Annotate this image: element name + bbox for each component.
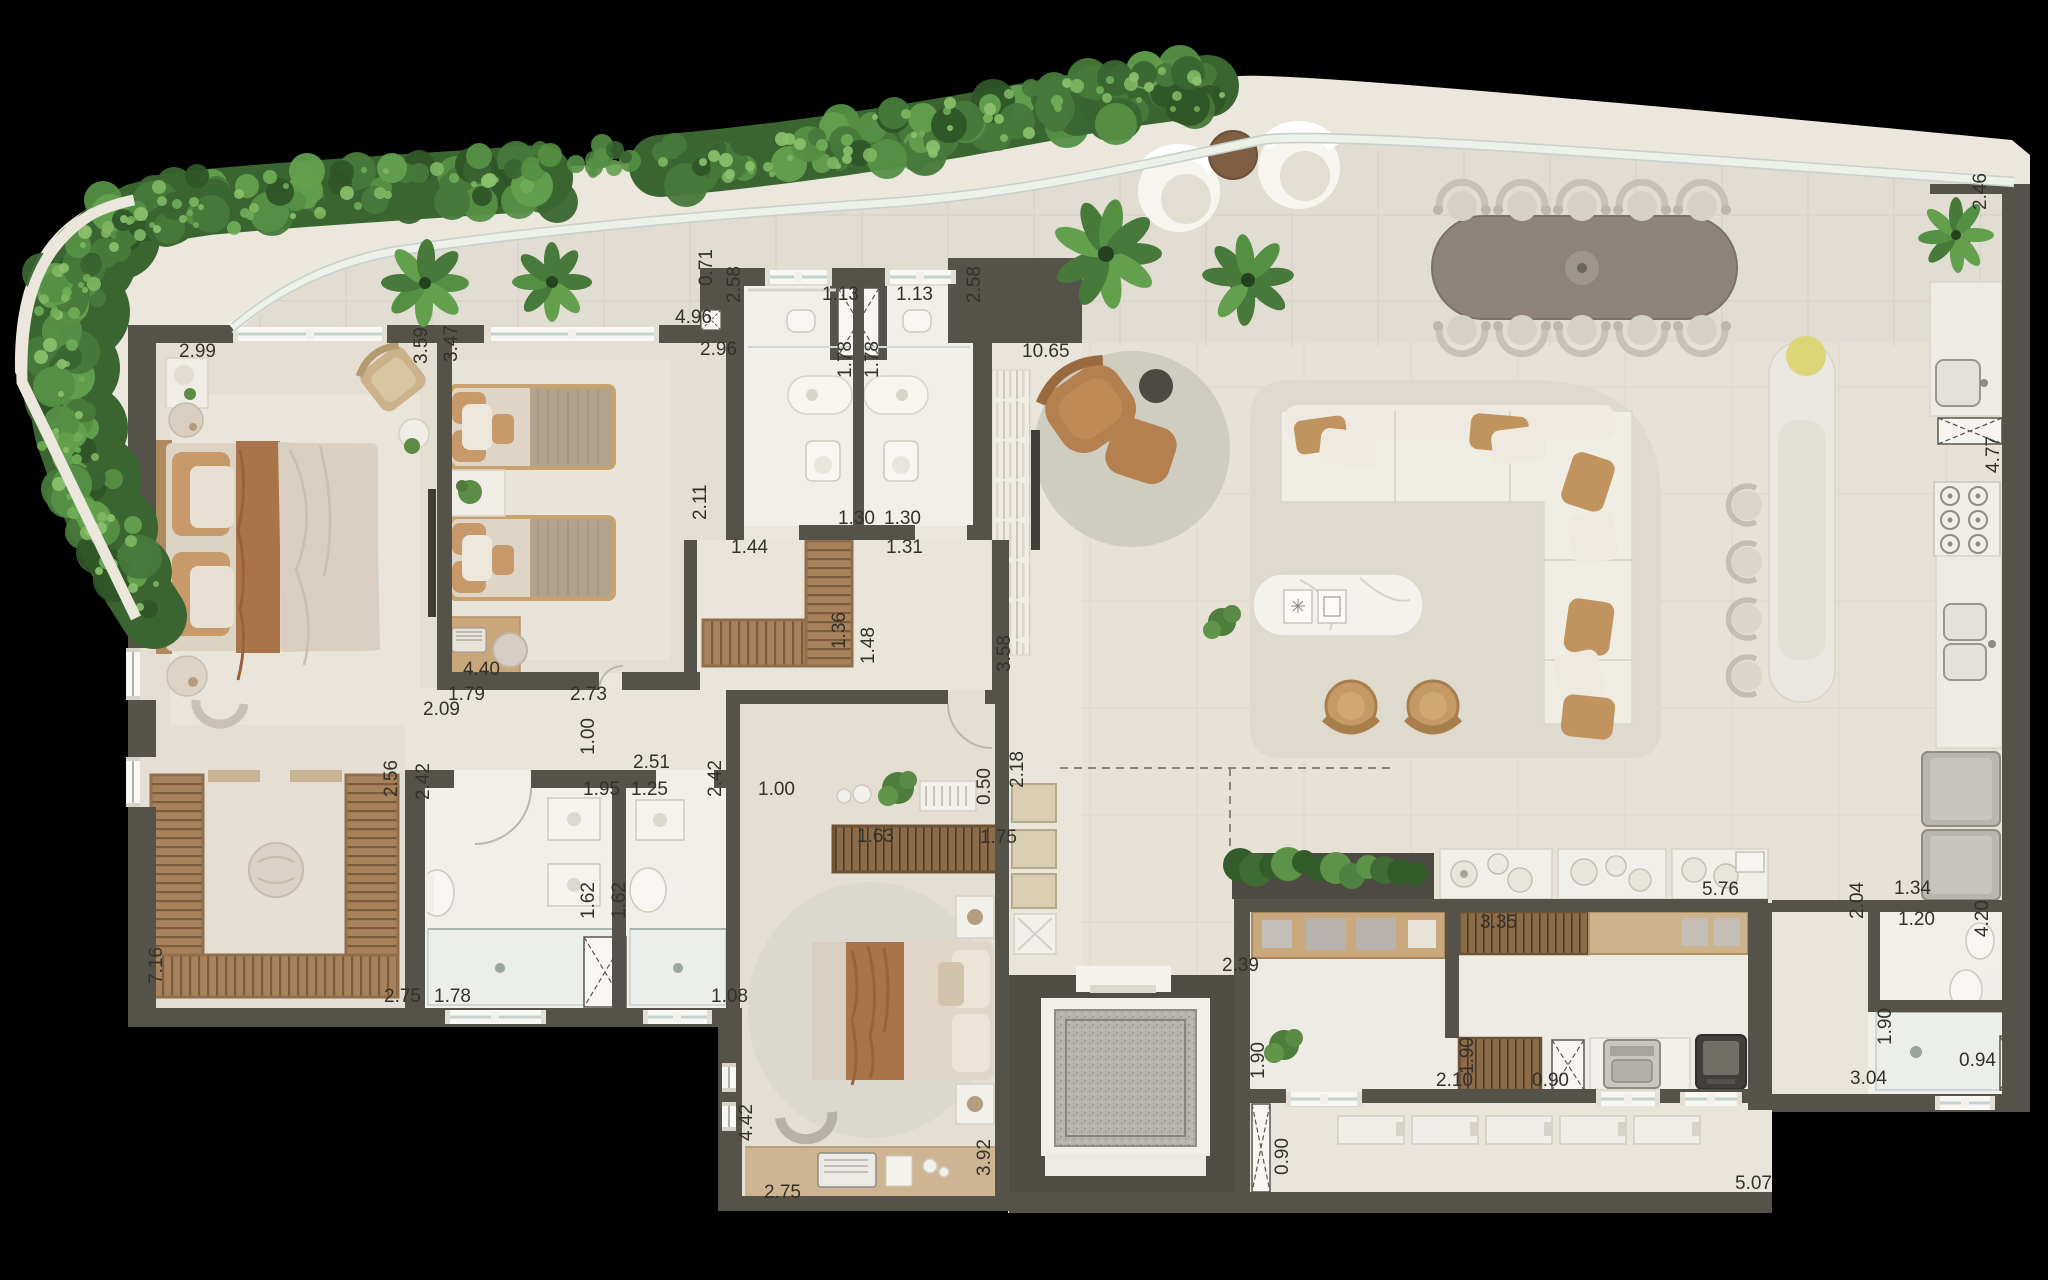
svg-text:4.40: 4.40 xyxy=(463,659,500,680)
svg-text:3.35: 3.35 xyxy=(1480,912,1517,933)
svg-text:1.78: 1.78 xyxy=(434,986,471,1007)
svg-text:1.30: 1.30 xyxy=(838,508,875,529)
svg-text:2.18: 2.18 xyxy=(1007,751,1028,788)
svg-text:0.90: 0.90 xyxy=(1532,1070,1569,1091)
svg-text:1.90: 1.90 xyxy=(1248,1042,1269,1079)
svg-text:1.90: 1.90 xyxy=(1457,1037,1478,1074)
svg-text:1.78: 1.78 xyxy=(862,341,883,378)
svg-text:1.30: 1.30 xyxy=(884,508,921,529)
svg-text:2.04: 2.04 xyxy=(1847,882,1868,919)
svg-text:1.34: 1.34 xyxy=(1894,878,1931,899)
svg-text:10.65: 10.65 xyxy=(1022,341,1070,362)
svg-text:2.58: 2.58 xyxy=(724,266,745,303)
svg-text:2.75: 2.75 xyxy=(384,986,421,1007)
svg-text:2.73: 2.73 xyxy=(570,684,607,705)
svg-text:2.11: 2.11 xyxy=(690,484,711,520)
svg-text:3.04: 3.04 xyxy=(1850,1068,1887,1089)
svg-text:4.96: 4.96 xyxy=(675,307,712,328)
svg-text:1.08: 1.08 xyxy=(711,986,748,1007)
svg-text:1.20: 1.20 xyxy=(1898,909,1935,930)
svg-text:2.51: 2.51 xyxy=(633,752,670,773)
svg-text:2.42: 2.42 xyxy=(705,760,726,797)
svg-text:2.99: 2.99 xyxy=(179,341,216,362)
svg-text:1.31: 1.31 xyxy=(886,537,923,558)
svg-text:1.48: 1.48 xyxy=(858,627,879,664)
svg-text:4.20: 4.20 xyxy=(1972,900,1993,937)
svg-text:2.96: 2.96 xyxy=(700,339,737,360)
svg-text:1.00: 1.00 xyxy=(578,718,599,755)
svg-text:0.94: 0.94 xyxy=(1959,1050,1996,1071)
svg-text:1.62: 1.62 xyxy=(578,882,599,919)
svg-text:2.58: 2.58 xyxy=(964,266,985,303)
svg-text:1.78: 1.78 xyxy=(835,341,856,378)
svg-text:1.00: 1.00 xyxy=(758,779,795,800)
svg-text:5.07: 5.07 xyxy=(1735,1173,1772,1194)
svg-text:1.90: 1.90 xyxy=(1875,1008,1896,1045)
svg-text:0.50: 0.50 xyxy=(974,768,995,805)
svg-text:1.13: 1.13 xyxy=(896,284,933,305)
svg-text:1.62: 1.62 xyxy=(609,882,630,919)
svg-text:3.59: 3.59 xyxy=(411,327,432,364)
svg-text:1.75: 1.75 xyxy=(980,827,1017,848)
svg-text:1.13: 1.13 xyxy=(822,284,859,305)
svg-text:2.46: 2.46 xyxy=(1970,173,1991,210)
svg-text:0.71: 0.71 xyxy=(696,249,717,286)
svg-text:1.44: 1.44 xyxy=(731,537,768,558)
svg-text:7.16: 7.16 xyxy=(146,947,167,984)
svg-text:4.42: 4.42 xyxy=(736,1104,757,1141)
svg-text:3.92: 3.92 xyxy=(974,1139,995,1176)
svg-text:1.95: 1.95 xyxy=(583,779,620,800)
svg-text:2.39: 2.39 xyxy=(1222,955,1259,976)
svg-text:1.25: 1.25 xyxy=(631,779,668,800)
svg-text:1.63: 1.63 xyxy=(857,826,894,847)
svg-text:3.58: 3.58 xyxy=(994,635,1015,672)
svg-text:2.56: 2.56 xyxy=(381,760,402,797)
svg-text:2.09: 2.09 xyxy=(423,699,460,720)
svg-text:1.36: 1.36 xyxy=(829,612,850,649)
svg-text:5.76: 5.76 xyxy=(1702,879,1739,900)
svg-text:2.42: 2.42 xyxy=(413,763,434,800)
svg-text:3.47: 3.47 xyxy=(441,325,462,362)
svg-text:4.77: 4.77 xyxy=(1983,436,2004,473)
svg-text:2.75: 2.75 xyxy=(764,1182,801,1203)
svg-text:0.90: 0.90 xyxy=(1272,1138,1293,1175)
